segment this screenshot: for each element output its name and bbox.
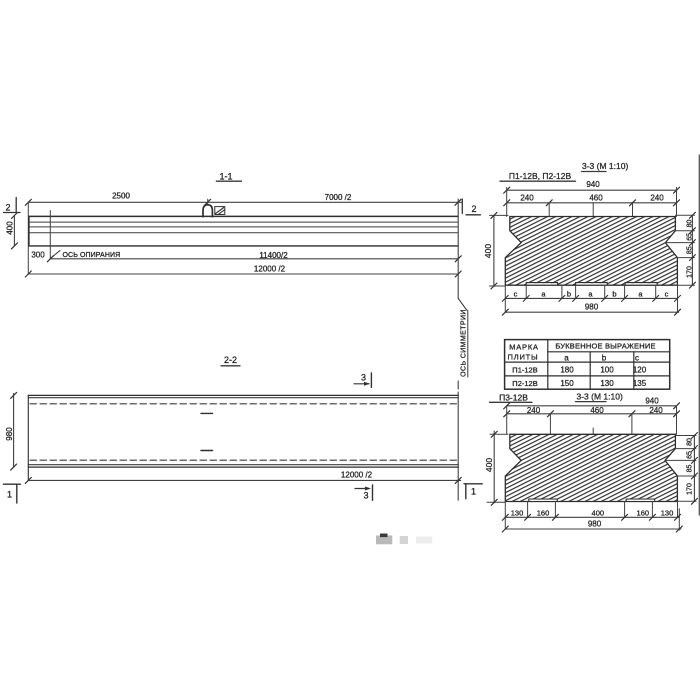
svg-text:980: 980: [585, 303, 599, 312]
svg-text:170: 170: [687, 483, 694, 495]
svg-text:МАРКА: МАРКА: [509, 343, 539, 352]
svg-text:240: 240: [520, 193, 534, 202]
svg-text:1: 1: [7, 490, 12, 500]
svg-text:150: 150: [560, 379, 574, 388]
svg-text:160: 160: [637, 508, 650, 517]
svg-text:160: 160: [537, 508, 550, 517]
svg-text:12000 /2: 12000 /2: [341, 471, 373, 480]
svg-text:c: c: [635, 354, 639, 363]
svg-text:120: 120: [633, 366, 647, 375]
svg-text:100: 100: [600, 366, 614, 375]
svg-text:П3-12В: П3-12В: [499, 392, 528, 402]
svg-text:2: 2: [5, 203, 10, 213]
svg-text:85: 85: [687, 465, 694, 473]
svg-text:130: 130: [511, 508, 524, 517]
svg-text:3: 3: [361, 373, 366, 383]
svg-text:980: 980: [5, 427, 14, 441]
svg-text:460: 460: [589, 193, 603, 202]
svg-text:180: 180: [560, 366, 574, 375]
svg-text:c: c: [665, 290, 669, 299]
svg-text:240: 240: [650, 193, 664, 202]
svg-text:940: 940: [586, 180, 600, 189]
svg-text:400: 400: [484, 458, 494, 472]
svg-text:400: 400: [6, 221, 15, 235]
svg-text:130: 130: [661, 508, 674, 517]
svg-text:a: a: [564, 354, 569, 363]
svg-text:65: 65: [687, 451, 694, 459]
svg-text:П1-12В: П1-12В: [512, 366, 537, 375]
svg-text:170: 170: [686, 266, 693, 278]
svg-text:11400/2: 11400/2: [259, 251, 288, 260]
svg-text:c: c: [514, 290, 518, 299]
svg-text:85: 85: [686, 246, 693, 254]
svg-text:b: b: [602, 354, 607, 363]
svg-text:3-3 (М 1:10): 3-3 (М 1:10): [577, 391, 623, 401]
svg-text:80: 80: [686, 220, 693, 228]
svg-text:БУКВЕННОЕ ВЫРАЖЕНИЕ: БУКВЕННОЕ ВЫРАЖЕНИЕ: [555, 342, 655, 351]
svg-text:1: 1: [471, 487, 476, 497]
svg-text:ОСЬ СИММЕТРИИ: ОСЬ СИММЕТРИИ: [461, 309, 468, 377]
svg-text:3: 3: [363, 491, 368, 501]
svg-text:130: 130: [600, 379, 614, 388]
svg-text:b: b: [612, 290, 616, 299]
svg-text:ПЛИТЫ: ПЛИТЫ: [508, 353, 539, 362]
svg-text:3-3 (М 1:10): 3-3 (М 1:10): [582, 161, 628, 171]
svg-text:ОСЬ ОПИРАНИЯ: ОСЬ ОПИРАНИЯ: [63, 252, 121, 259]
svg-text:80: 80: [687, 438, 694, 446]
svg-text:П1-12В, П2-12В: П1-12В, П2-12В: [509, 171, 572, 181]
svg-text:65: 65: [686, 233, 693, 241]
svg-text:940: 940: [645, 397, 659, 406]
svg-text:a: a: [541, 290, 546, 299]
svg-text:2-2: 2-2: [224, 355, 237, 365]
svg-text:2500: 2500: [112, 191, 130, 200]
svg-text:a: a: [588, 290, 593, 299]
svg-text:П2-12В: П2-12В: [512, 379, 537, 388]
svg-text:7000 /2: 7000 /2: [325, 193, 352, 202]
svg-text:400: 400: [483, 244, 493, 258]
svg-text:b: b: [567, 290, 571, 299]
svg-text:400: 400: [592, 508, 605, 517]
svg-text:12000 /2: 12000 /2: [254, 264, 286, 273]
svg-text:300: 300: [31, 250, 45, 259]
svg-text:1-1: 1-1: [219, 172, 232, 182]
svg-text:2: 2: [471, 204, 476, 214]
svg-text:135: 135: [633, 379, 647, 388]
svg-text:a: a: [638, 290, 643, 299]
svg-text:980: 980: [588, 520, 602, 529]
